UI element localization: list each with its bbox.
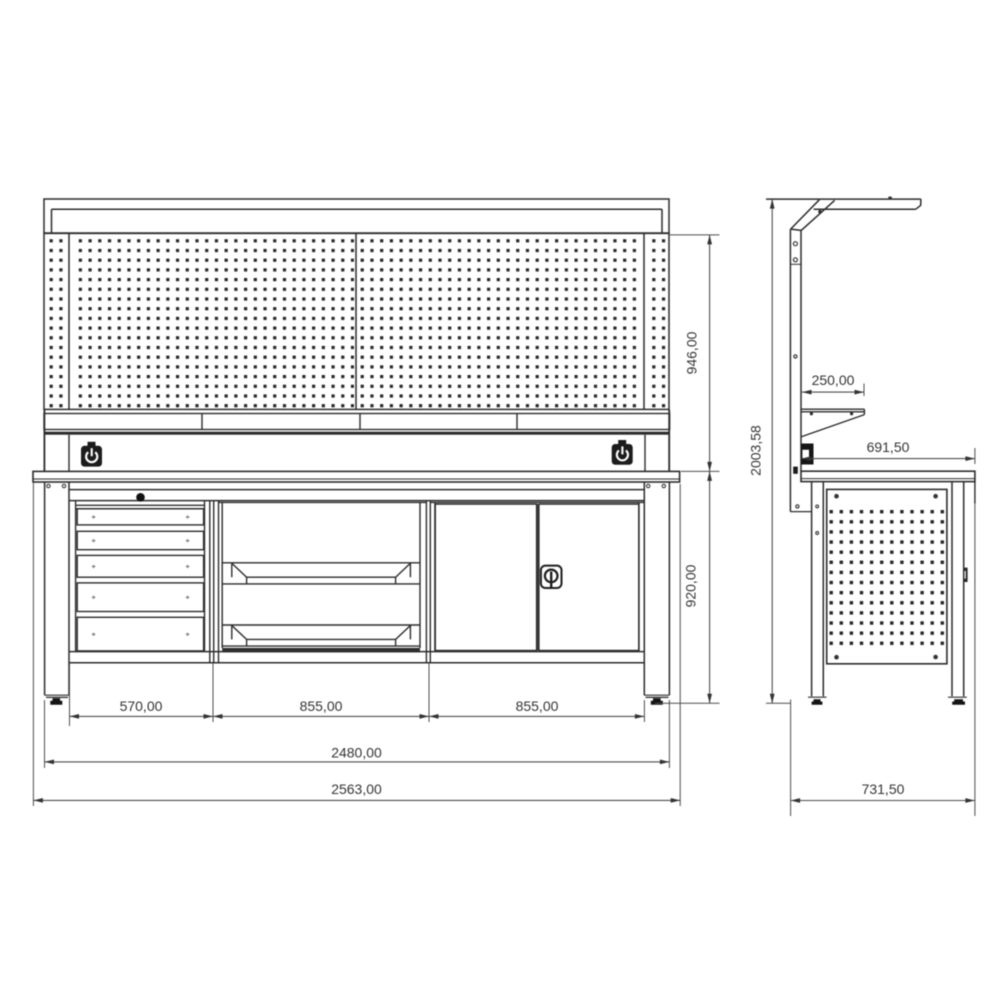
- svg-text:946,00: 946,00: [684, 331, 700, 374]
- svg-text:2480,00: 2480,00: [331, 745, 382, 761]
- svg-text:731,50: 731,50: [862, 781, 905, 797]
- svg-text:2563,00: 2563,00: [331, 781, 382, 797]
- svg-text:855,00: 855,00: [300, 698, 343, 714]
- svg-text:920,00: 920,00: [683, 564, 699, 607]
- svg-text:570,00: 570,00: [120, 698, 163, 714]
- svg-text:2003,58: 2003,58: [748, 425, 764, 476]
- svg-text:250,00: 250,00: [812, 372, 855, 388]
- svg-text:691,50: 691,50: [867, 439, 910, 455]
- svg-text:855,00: 855,00: [516, 698, 559, 714]
